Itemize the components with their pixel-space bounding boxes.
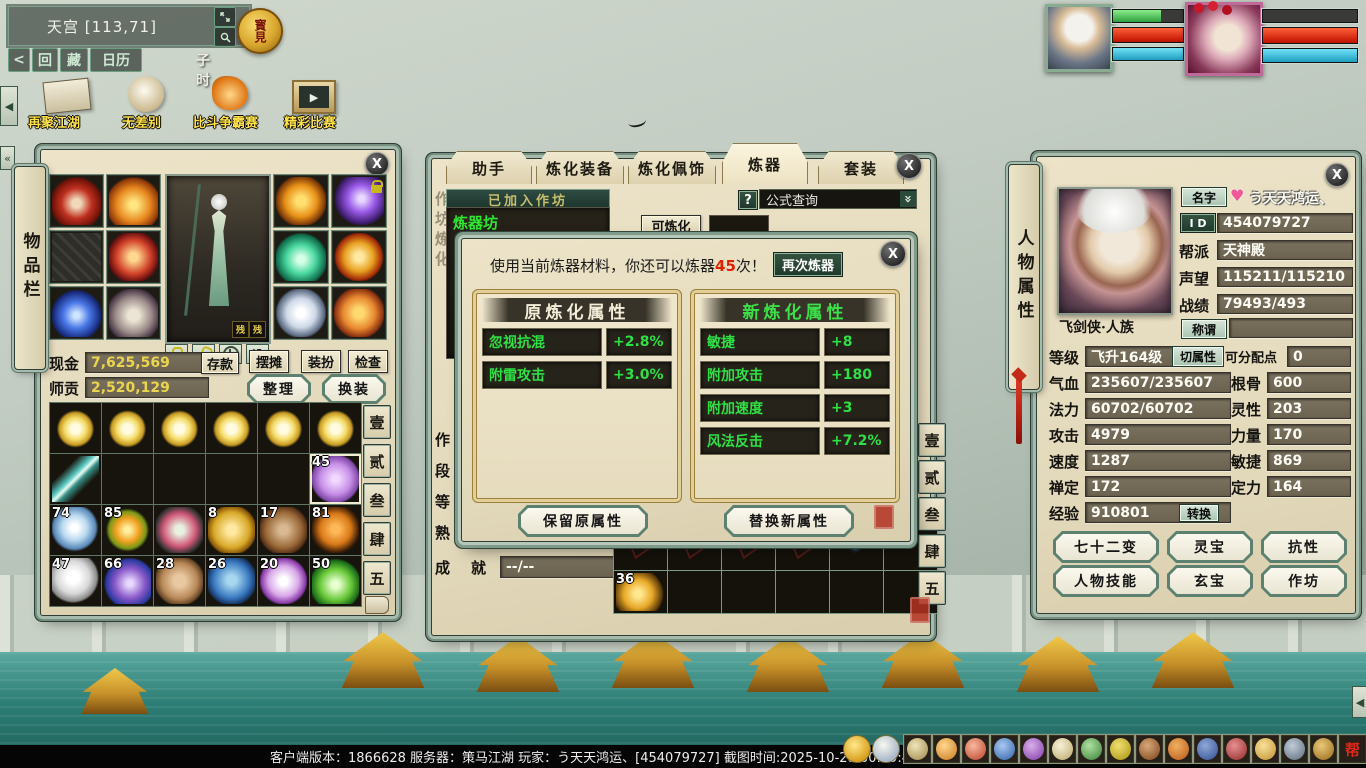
search-icon <box>220 32 231 43</box>
tab-assistant[interactable]: 助手 <box>446 151 532 184</box>
collapse-button[interactable]: < <box>8 48 30 72</box>
equip-slot-weapon-empty[interactable] <box>49 230 104 284</box>
hotbar-slot[interactable] <box>1164 734 1193 764</box>
tribute-value-field: 2,520,129 <box>85 377 209 398</box>
hotbar-slot[interactable] <box>1309 734 1338 764</box>
character-portrait <box>1057 187 1173 315</box>
exp-label: 经验 <box>1049 503 1079 524</box>
tribute-label: 师贡 <box>49 378 79 399</box>
row-label: 作 <box>435 429 450 450</box>
target-hp-bar <box>1262 27 1358 44</box>
player-mp-bar <box>1112 47 1184 61</box>
craft-slot-empty[interactable] <box>709 215 769 235</box>
id-label-button: I D <box>1181 214 1215 232</box>
workshop-button[interactable]: 作坊 <box>1261 565 1347 597</box>
bag-slot-starfruit[interactable]: 85 <box>102 505 153 555</box>
refine-again-button[interactable]: 再次炼器 <box>774 253 842 276</box>
alias-label-button[interactable]: 称谓 <box>1181 319 1227 339</box>
hotbar-slot[interactable] <box>1135 734 1164 764</box>
highlight-match-tv-icon[interactable]: ▶ <box>292 80 336 114</box>
scroll-icon[interactable] <box>365 596 389 614</box>
points-field: 0 <box>1287 346 1351 367</box>
bag-slot-sword[interactable] <box>50 454 101 504</box>
rose-decoration <box>1194 3 1204 13</box>
mp-label: 法力 <box>1049 399 1079 420</box>
game-time: 子时 <box>196 50 210 90</box>
equipment-grid-right <box>273 174 387 340</box>
new-attributes-title: 新炼化属性 <box>700 298 890 322</box>
bag-slot-herb[interactable]: 50 <box>310 556 361 606</box>
bag-slot-lantern[interactable] <box>102 403 153 453</box>
calendar-button[interactable]: 日历 <box>90 48 142 72</box>
equip-slot-robe[interactable] <box>106 230 161 284</box>
equip-slot-charm-green[interactable] <box>273 230 329 284</box>
level-label: 等级 <box>1049 347 1079 368</box>
battle-contest-icon[interactable] <box>212 76 248 110</box>
workshop-tab-1[interactable]: 壹 <box>918 423 946 457</box>
tray-collapse-arrow[interactable]: ◀ <box>0 86 18 126</box>
bag-slot-crystal[interactable]: 74 <box>50 505 101 555</box>
bag-slot-empty[interactable] <box>258 454 309 504</box>
preview-staff <box>184 184 201 316</box>
equip-slot-cloak[interactable] <box>49 174 104 228</box>
status-text: 客户端版本：1866628 服务器：策马江湖 玩家：う天天鸿运、[4540797… <box>270 747 918 766</box>
workshop-tab-3[interactable]: 叁 <box>918 497 946 531</box>
activity-label[interactable]: 无差别 <box>122 112 161 131</box>
lock-icon <box>371 185 382 193</box>
chevron-down-icon: » <box>900 191 916 207</box>
left-arrow-icon: ◀ <box>1356 696 1364 709</box>
attack-label: 攻击 <box>1049 425 1079 446</box>
bag-tab-5[interactable]: 五 <box>363 561 391 595</box>
equip-slot-mask[interactable] <box>273 174 329 228</box>
hotbar-slot[interactable] <box>1222 734 1251 764</box>
hotbar-slot[interactable] <box>1106 734 1135 764</box>
character-close-button[interactable]: X <box>1325 163 1349 187</box>
treasure-icon[interactable]: 寳見 <box>237 8 283 54</box>
equip-slot-cloud[interactable] <box>273 286 329 340</box>
tassel-decoration <box>1016 378 1022 444</box>
chat-round-icon[interactable] <box>872 735 900 763</box>
achievement-label: 成 <box>435 557 450 578</box>
hp-label: 气血 <box>1049 373 1079 394</box>
workshop-list-item[interactable]: 炼器坊 <box>447 208 609 237</box>
hotbar-slot[interactable] <box>1251 734 1280 764</box>
alias-field <box>1229 318 1353 338</box>
cash-value-field: 7,625,569 <box>85 352 209 373</box>
material-slot[interactable] <box>776 571 829 613</box>
equip-slot-amulet[interactable] <box>331 286 387 340</box>
achievement-field: --/-- <box>500 556 628 578</box>
target-bars <box>1262 9 1358 63</box>
refine-result-dialog: X 使用当前炼器材料，你还可以炼器45次！ 再次炼器 原炼化属性 忽视抗混 +2… <box>461 238 911 542</box>
character-panel-title-tab[interactable]: 人物属性 <box>1008 164 1040 390</box>
bag-slot-pearl[interactable]: 47 <box>50 556 101 606</box>
bag-slot-basket[interactable]: 81 <box>310 505 361 555</box>
new-attributes-panel: 新炼化属性 敏捷 +8 附加攻击 +180 附加速度 +3 风法反击 +7.2% <box>690 289 900 503</box>
equip-slot-necklace[interactable] <box>331 174 387 228</box>
bag-slot-lantern[interactable] <box>50 403 101 453</box>
panel-collapse-arrow[interactable]: « <box>0 146 15 170</box>
tab-refine-accessory[interactable]: 炼化佩饰 <box>628 151 716 184</box>
workshop-close-button[interactable]: X <box>896 153 922 179</box>
mystic-treasure-button[interactable]: 玄宝 <box>1167 565 1253 597</box>
switch-attributes-button[interactable]: 切属性 <box>1172 346 1224 367</box>
guild-field: 天神殿 <box>1217 240 1353 260</box>
zen-field: 172 <box>1085 476 1231 497</box>
right-tray-arrow[interactable]: ◀ <box>1352 686 1366 718</box>
bag-slot-silk[interactable]: 20 <box>258 556 309 606</box>
strength-field: 170 <box>1267 424 1351 445</box>
focus-label: 定力 <box>1231 477 1261 498</box>
record-field: 79493/493 <box>1217 294 1353 314</box>
game-screen: 天宫 [113,71] 寳見 < 回 藏 日历 子时 再聚江湖 无差别 比斗争霸… <box>0 0 1366 768</box>
tab-refine-equipment[interactable]: 炼化装备 <box>536 151 624 184</box>
level-field: 飞升164级 <box>1085 346 1181 367</box>
row-label: 段 <box>435 460 450 481</box>
hotbar-slot[interactable] <box>1048 734 1077 764</box>
bag-tab-2[interactable]: 贰 <box>363 444 391 478</box>
player-bars <box>1112 9 1184 61</box>
achievement-label: 就 <box>471 557 486 578</box>
activity-label[interactable]: 精彩比赛 <box>284 112 336 131</box>
old-attributes-title: 原炼化属性 <box>482 298 672 322</box>
red-seal-stamp <box>910 597 930 623</box>
cash-label: 现金 <box>49 353 79 374</box>
bag-slot-empty[interactable] <box>102 454 153 504</box>
hui-button[interactable]: 回 <box>32 48 58 72</box>
character-panel: X 飞剑侠·人族 名字 ♥ う天天鸿运、 I D 454079727 帮派 天神… <box>1036 156 1356 614</box>
points-label: 可分配点 <box>1225 347 1277 366</box>
character-skills-button[interactable]: 人物技能 <box>1053 565 1159 597</box>
inventory-close-button[interactable]: X <box>365 152 389 176</box>
left-arrow-icon: ◀ <box>5 100 13 113</box>
material-slot[interactable] <box>722 571 775 613</box>
target-portrait[interactable] <box>1185 2 1263 76</box>
character-model-preview[interactable]: 残 残 <box>165 174 271 344</box>
bag-slot-empty[interactable] <box>154 454 205 504</box>
material-slot[interactable] <box>668 571 721 613</box>
formula-query-dropdown[interactable]: 公式查询 » <box>759 189 917 209</box>
spirit-treasure-button[interactable]: 灵宝 <box>1167 531 1253 563</box>
player-hp-bar <box>1112 27 1184 43</box>
preview-badge: 残 <box>249 321 266 338</box>
tab-set[interactable]: 套装 <box>818 151 904 184</box>
bag-slot-scrolls-selected[interactable]: 45 <box>310 454 361 504</box>
joined-workshop-header: 已加入作坊 <box>446 189 610 209</box>
activity-label[interactable]: 比斗争霸赛 <box>193 112 258 131</box>
cang-button[interactable]: 藏 <box>60 48 88 72</box>
strength-label: 力量 <box>1231 425 1261 446</box>
refine-message: 使用当前炼器材料，你还可以炼器45次！ <box>490 255 766 276</box>
spirit-label: 灵性 <box>1231 399 1261 420</box>
hotbar-slot[interactable] <box>1280 734 1309 764</box>
equip-slot-boots[interactable] <box>106 286 161 340</box>
bag-slot-hide[interactable]: 17 <box>258 505 309 555</box>
stall-button[interactable]: 摆摊 <box>249 350 289 373</box>
equipment-grid-left <box>49 174 161 340</box>
bag-slot-lantern[interactable] <box>310 403 361 453</box>
play-icon: ▶ <box>299 86 329 108</box>
hotbar-slot[interactable] <box>961 734 990 764</box>
equip-slot-headwear[interactable] <box>106 174 161 228</box>
double-left-icon: « <box>4 152 11 165</box>
dialog-close-button[interactable]: X <box>880 241 906 267</box>
material-slot-coins[interactable]: 36 <box>614 571 667 613</box>
inspect-button[interactable]: 检查 <box>348 350 388 373</box>
speed-label: 速度 <box>1049 451 1079 472</box>
attack-field: 4979 <box>1085 424 1231 445</box>
player-xp-bar <box>1112 9 1184 23</box>
bag-slot-lantern[interactable] <box>206 403 257 453</box>
bag-slot-gold-bolt[interactable]: 8 <box>206 505 257 555</box>
inventory-panel-title-tab[interactable]: 物品栏 <box>14 166 46 370</box>
location-text: 天宫 [113,71] <box>47 16 157 37</box>
attribute-row: 风法反击 +7.2% <box>700 427 890 455</box>
material-slot[interactable] <box>830 571 883 613</box>
seventy-two-transforms-button[interactable]: 七十二变 <box>1053 531 1159 563</box>
emote-round-icon[interactable] <box>843 735 871 763</box>
reunion-book-icon[interactable] <box>42 78 91 115</box>
row-label: 等 <box>435 491 450 512</box>
workshop-tab-4[interactable]: 肆 <box>918 534 946 568</box>
preview-head <box>211 194 227 210</box>
outfit-button[interactable]: 换装 <box>322 374 386 404</box>
attribute-row: 附雷攻击 +3.0% <box>482 361 672 389</box>
hp-field: 235607/235607 <box>1085 372 1231 393</box>
focus-field: 164 <box>1267 476 1351 497</box>
old-attributes-panel: 原炼化属性 忽视抗混 +2.8% 附雷攻击 +3.0% <box>472 289 682 503</box>
minimap-expand-button[interactable] <box>214 7 236 27</box>
bag-tab-1[interactable]: 壹 <box>363 405 391 439</box>
bag-slot-egg[interactable]: 26 <box>206 556 257 606</box>
attribute-row: 附加攻击 +180 <box>700 361 890 389</box>
attribute-row: 忽视抗混 +2.8% <box>482 328 672 356</box>
convert-button[interactable]: 转换 <box>1179 504 1219 522</box>
hotbar-slot[interactable] <box>1077 734 1106 764</box>
row-label: 熟 <box>435 522 450 543</box>
agility-field: 869 <box>1267 450 1351 471</box>
replace-new-attributes-button[interactable]: 替换新属性 <box>724 505 854 537</box>
zen-label: 禅定 <box>1049 477 1079 498</box>
speed-field: 1287 <box>1085 450 1231 471</box>
id-field: 454079727 <box>1217 213 1353 233</box>
spirit-field: 203 <box>1267 398 1351 419</box>
bag-slot-card[interactable] <box>154 505 205 555</box>
attribute-row: 附加速度 +3 <box>700 394 890 422</box>
bag-slot-tag[interactable]: 28 <box>154 556 205 606</box>
resistance-button[interactable]: 抗性 <box>1261 531 1347 563</box>
preview-robe <box>201 210 237 306</box>
equip-slot-ring[interactable] <box>331 230 387 284</box>
root-label: 根骨 <box>1231 373 1261 394</box>
expand-arrows-icon <box>220 12 230 22</box>
sort-button[interactable]: 整理 <box>247 374 311 404</box>
guild-label: 帮派 <box>1179 241 1209 262</box>
keep-old-attributes-button[interactable]: 保留原属性 <box>518 505 648 537</box>
minimap-search-button[interactable] <box>214 27 236 47</box>
tab-forge[interactable]: 炼器 <box>722 143 808 184</box>
bag-slot-empty[interactable] <box>206 454 257 504</box>
inventory-panel: X 残 残 设 <box>40 149 396 616</box>
workshop-tab-2[interactable]: 贰 <box>918 460 946 494</box>
fame-label: 声望 <box>1179 268 1209 289</box>
no-restriction-orb-icon[interactable] <box>128 76 164 112</box>
bag-slot-grapes[interactable]: 66 <box>102 556 153 606</box>
bag-slot-lantern[interactable] <box>154 403 205 453</box>
class-race-text: 飞剑侠·人族 <box>1059 317 1134 337</box>
player-portrait[interactable] <box>1045 4 1113 72</box>
name-label-button[interactable]: 名字 <box>1181 187 1227 207</box>
refine-count: 45 <box>715 257 736 275</box>
target-xp-bar <box>1262 9 1358 23</box>
bag-grid: 45 74 85 8 17 81 47 66 28 26 20 50 <box>49 402 362 607</box>
dress-up-button[interactable]: 装扮 <box>301 350 341 373</box>
character-name: う天天鸿运、 <box>1249 188 1333 208</box>
bag-tab-4[interactable]: 肆 <box>363 522 391 556</box>
hotbar-slot[interactable] <box>1019 734 1048 764</box>
charm-heart-icon: ♥ <box>1230 188 1244 204</box>
hotbar-slot[interactable] <box>932 734 961 764</box>
bag-tab-3[interactable]: 叁 <box>363 483 391 517</box>
fame-field: 115211/115210 <box>1217 267 1353 287</box>
root-field: 600 <box>1267 372 1351 393</box>
bag-slot-lantern[interactable] <box>258 403 309 453</box>
craftable-button[interactable]: 可炼化 <box>641 215 701 235</box>
hotbar-slot[interactable] <box>1193 734 1222 764</box>
help-button[interactable]: ? <box>739 191 757 209</box>
record-label: 战绩 <box>1179 295 1209 316</box>
hotbar-slot-help[interactable]: 帮 <box>1338 734 1366 764</box>
attribute-row: 敏捷 +8 <box>700 328 890 356</box>
preview-badge: 残 <box>232 321 249 338</box>
hotbar-slot[interactable] <box>990 734 1019 764</box>
deposit-button[interactable]: 存款 <box>201 352 239 374</box>
activity-label[interactable]: 再聚江湖 <box>28 112 80 131</box>
target-mp-bar <box>1262 48 1358 63</box>
mp-field: 60702/60702 <box>1085 398 1231 419</box>
equip-slot-pendant[interactable] <box>49 286 104 340</box>
agility-label: 敏捷 <box>1231 451 1261 472</box>
hotbar-slot[interactable] <box>903 734 932 764</box>
red-seal-stamp <box>874 505 894 529</box>
